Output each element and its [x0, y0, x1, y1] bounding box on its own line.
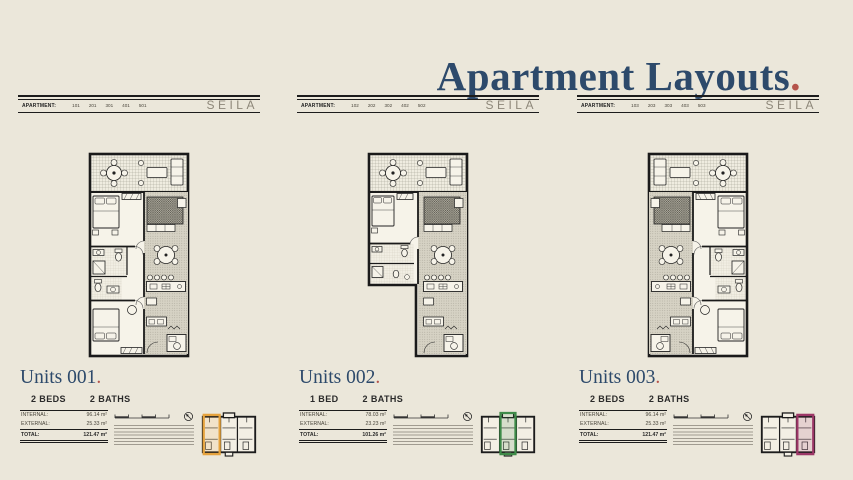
- unit-title: Units 002.: [297, 368, 539, 388]
- unit-section-001: APARTMENT: 101 201 301 401 501 SEILA Uni…: [18, 95, 260, 458]
- floor-plan-unit-003: [646, 151, 750, 359]
- apartment-number: 202: [368, 103, 376, 108]
- key-plan-highlight: [501, 413, 516, 454]
- beds-baths: 2 BEDS 2 BATHS: [577, 394, 819, 404]
- external-value: 23.23 m²: [366, 421, 386, 427]
- disclaimer-text: [114, 425, 194, 445]
- area-table: INTERNAL:96.14 m² EXTERNAL:25.33 m² TOTA…: [579, 410, 667, 443]
- beds-baths: 2 BEDS 2 BATHS: [18, 394, 260, 404]
- apartment-number: 101: [72, 103, 80, 108]
- apartment-number: 502: [418, 103, 426, 108]
- floor-plan-unit-001: [87, 151, 191, 359]
- scale-bar: [673, 412, 729, 421]
- apartment-label: APARTMENT:: [581, 103, 615, 109]
- north-arrow-icon: [742, 411, 753, 422]
- internal-label: INTERNAL:: [21, 412, 48, 418]
- baths-label: 2 BATHS: [363, 394, 404, 404]
- key-plan-unit-001: [200, 411, 258, 458]
- seila-logo: SEILA: [206, 99, 258, 111]
- apartment-number: 302: [384, 103, 392, 108]
- apartment-number: 303: [664, 103, 672, 108]
- external-label: EXTERNAL:: [300, 421, 329, 427]
- external-label: EXTERNAL:: [580, 421, 609, 427]
- page-title: Apartment Layouts.: [437, 54, 801, 99]
- floor-plan-unit-002: [366, 151, 470, 359]
- apartment-number: 103: [631, 103, 639, 108]
- key-plan-highlight: [797, 415, 813, 454]
- beds-baths: 1 BED 2 BATHS: [297, 394, 539, 404]
- area-table: INTERNAL:78.03 m² EXTERNAL:23.23 m² TOTA…: [299, 410, 387, 443]
- total-value: 121.47 m²: [642, 432, 666, 438]
- key-plan-unit-002: [479, 411, 537, 458]
- apartment-header-bar: APARTMENT: 103 203 303 403 503 SEILA: [577, 95, 819, 113]
- total-label: TOTAL:: [580, 432, 599, 438]
- unit-section-002: APARTMENT: 102 202 302 402 502 SEILA Uni…: [297, 95, 539, 458]
- title-period: .: [790, 53, 801, 99]
- apartment-number: 403: [681, 103, 689, 108]
- seila-logo: SEILA: [765, 99, 817, 111]
- apartment-number: 501: [139, 103, 147, 108]
- seila-logo: SEILA: [485, 99, 537, 111]
- total-value: 121.47 m²: [83, 432, 107, 438]
- apartment-header-bar: APARTMENT: 101 201 301 401 501 SEILA: [18, 95, 260, 113]
- internal-value: 96.14 m²: [646, 412, 666, 418]
- scale-bar: [393, 412, 449, 421]
- unit-title: Units 001.: [18, 368, 260, 388]
- total-label: TOTAL:: [300, 432, 319, 438]
- external-value: 25.33 m²: [87, 421, 107, 427]
- apartment-number: 401: [122, 103, 130, 108]
- total-value: 101.26 m²: [362, 432, 386, 438]
- north-arrow-icon: [462, 411, 473, 422]
- key-plan-unit-003: [759, 411, 817, 458]
- apartment-numbers: 103 203 303 403 503: [631, 103, 705, 108]
- apartment-number: 402: [401, 103, 409, 108]
- apartment-header-bar: APARTMENT: 102 202 302 402 502 SEILA: [297, 95, 539, 113]
- scale-bar: [114, 412, 170, 421]
- apartment-number: 301: [105, 103, 113, 108]
- apartment-number: 102: [351, 103, 359, 108]
- area-table: INTERNAL:96.14 m² EXTERNAL:25.33 m² TOTA…: [20, 410, 108, 443]
- internal-label: INTERNAL:: [580, 412, 607, 418]
- apartment-numbers: 101 201 301 401 501: [72, 103, 146, 108]
- internal-label: INTERNAL:: [300, 412, 327, 418]
- beds-label: 2 BEDS: [31, 394, 66, 404]
- unit-section-003: APARTMENT: 103 203 303 403 503 SEILA Uni…: [577, 95, 819, 458]
- beds-label: 2 BEDS: [590, 394, 625, 404]
- disclaimer-text: [673, 425, 753, 445]
- total-label: TOTAL:: [21, 432, 40, 438]
- internal-value: 96.14 m²: [87, 412, 107, 418]
- apartment-number: 503: [698, 103, 706, 108]
- disclaimer-text: [393, 425, 473, 445]
- apartment-number: 201: [89, 103, 97, 108]
- internal-value: 78.03 m²: [366, 412, 386, 418]
- external-label: EXTERNAL:: [21, 421, 50, 427]
- baths-label: 2 BATHS: [90, 394, 131, 404]
- apartment-numbers: 102 202 302 402 502: [351, 103, 425, 108]
- apartment-number: 203: [648, 103, 656, 108]
- key-plan-highlight: [204, 415, 220, 454]
- north-arrow-icon: [183, 411, 194, 422]
- baths-label: 2 BATHS: [649, 394, 690, 404]
- unit-title: Units 003.: [577, 368, 819, 388]
- beds-label: 1 BED: [310, 394, 339, 404]
- external-value: 25.33 m²: [646, 421, 666, 427]
- apartment-label: APARTMENT:: [301, 103, 335, 109]
- apartment-label: APARTMENT:: [22, 103, 56, 109]
